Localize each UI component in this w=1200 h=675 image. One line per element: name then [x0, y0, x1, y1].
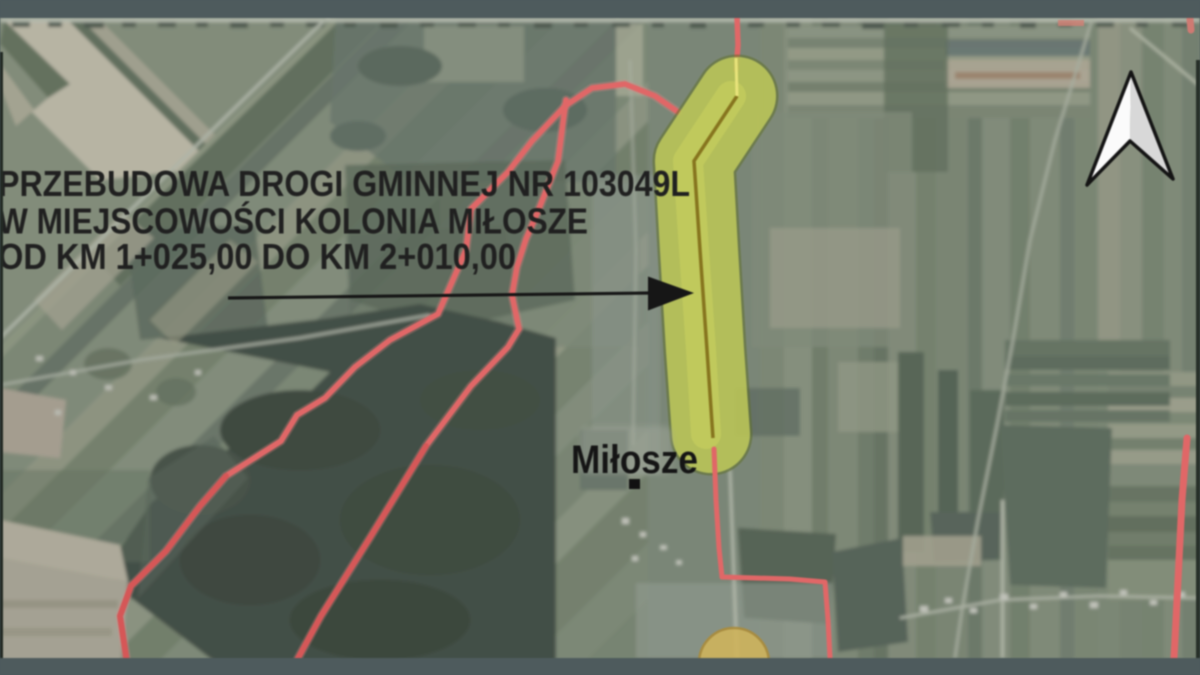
svg-text:OD KM 1+025,00 DO KM 2+010,00: OD KM 1+025,00 DO KM 2+010,00	[0, 236, 516, 277]
svg-text:PRZEBUDOWA DROGI GMINNEJ NR 10: PRZEBUDOWA DROGI GMINNEJ NR 103049L	[0, 163, 690, 204]
svg-text:Miłosze: Miłosze	[571, 438, 698, 482]
